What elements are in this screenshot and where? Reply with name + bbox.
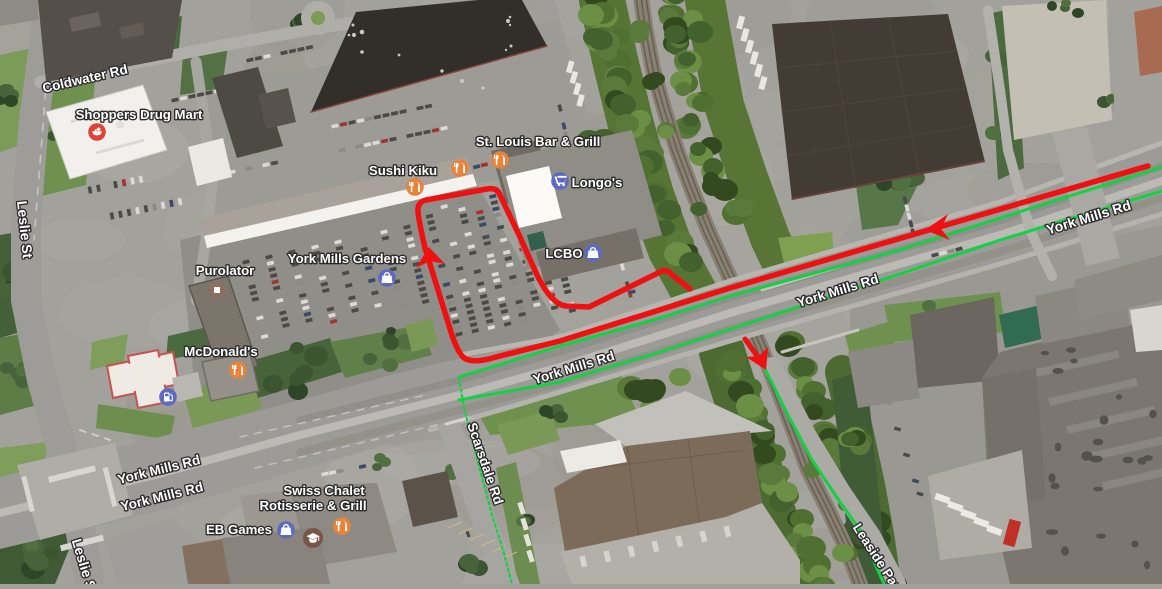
svg-text:St. Louis Bar & Grill: St. Louis Bar & Grill (476, 134, 601, 149)
svg-text:Shoppers Drug Mart: Shoppers Drug Mart (76, 107, 203, 122)
svg-text:Rotisserie & Grill: Rotisserie & Grill (259, 498, 366, 513)
svg-text:McDonald's: McDonald's (184, 344, 257, 359)
svg-text:Longo's: Longo's (572, 175, 623, 190)
svg-text:Purolator: Purolator (196, 263, 255, 278)
svg-text:Swiss Chalet: Swiss Chalet (283, 483, 365, 498)
svg-text:EB Games: EB Games (206, 522, 272, 537)
svg-text:LCBO: LCBO (545, 246, 582, 261)
svg-text:York Mills Gardens: York Mills Gardens (288, 251, 406, 266)
svg-text:Sushi Kiku: Sushi Kiku (369, 163, 437, 178)
